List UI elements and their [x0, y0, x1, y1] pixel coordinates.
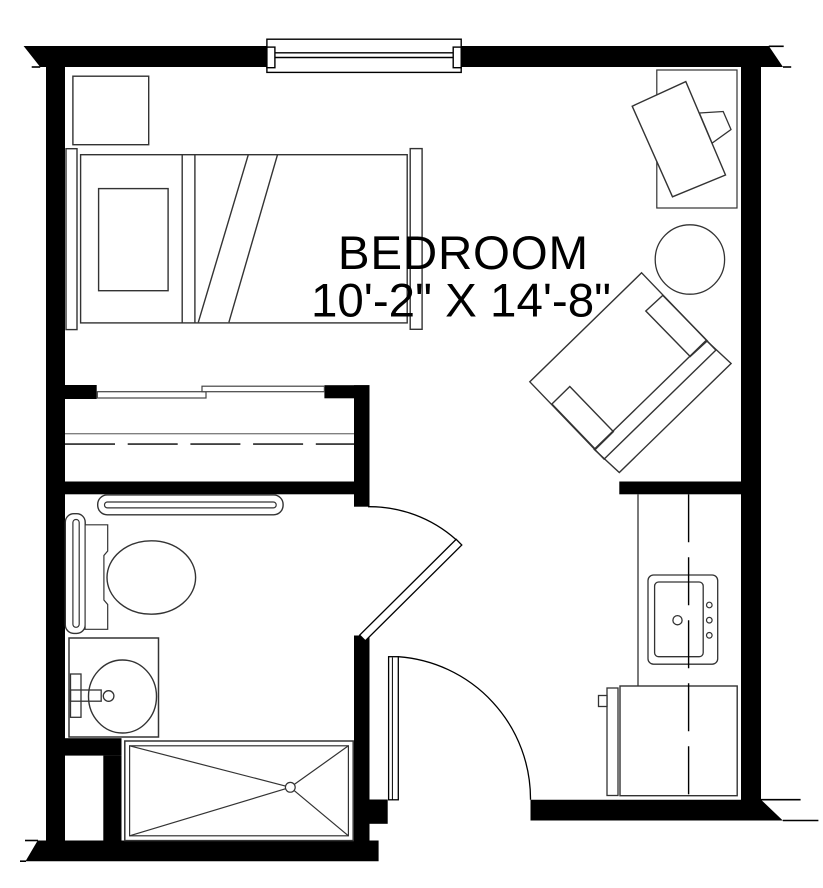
svg-text:BEDROOM: BEDROOM [338, 227, 589, 280]
svg-text:10'-2" X 14'-8": 10'-2" X 14'-8" [311, 274, 611, 327]
